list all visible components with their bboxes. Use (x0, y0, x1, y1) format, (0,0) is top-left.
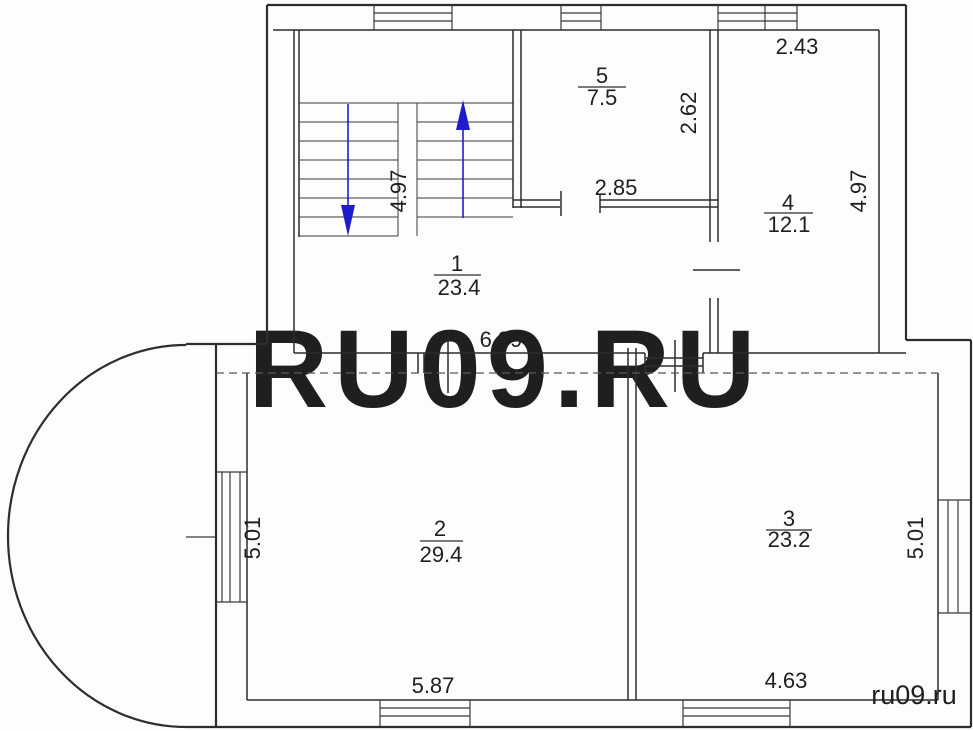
room-1-area: 23.4 (438, 275, 481, 300)
dim-room2-left-height: 5.01 (240, 517, 265, 560)
floor-plan-page: RU09.RU 1 23.4 2 29.4 (0, 0, 973, 731)
dim-top-right-width: 2.43 (776, 34, 819, 59)
room-4-area: 12.1 (768, 212, 811, 237)
window-top-middle (561, 5, 601, 30)
window-top-left (374, 5, 452, 30)
dim-room5-door-width: 2.85 (595, 175, 638, 200)
dim-room3-right-height: 5.01 (903, 517, 928, 560)
window-bottom-left (380, 700, 470, 727)
room-1-number: 1 (451, 251, 463, 276)
room-5-area: 7.5 (587, 85, 618, 110)
dim-room4-left-height: 2.62 (676, 92, 701, 135)
staircase (299, 103, 513, 236)
dim-hall-bottom-width: 6.39 (480, 327, 523, 352)
dim-room2-bottom-width: 5.87 (412, 673, 455, 698)
dim-room3-bottom-width: 4.63 (765, 668, 808, 693)
dim-room4-right-height: 4.97 (846, 170, 871, 213)
window-right-wall (938, 500, 971, 613)
stairs-down-arrow-icon (341, 205, 355, 236)
room-3-area: 23.2 (768, 527, 811, 552)
dim-stairwell-height: 4.97 (386, 170, 411, 213)
stair-treads (299, 103, 513, 236)
window-top-right (718, 5, 797, 30)
floor-plan-drawing: RU09.RU 1 23.4 2 29.4 (0, 0, 973, 731)
window-bottom-right (683, 700, 790, 727)
stairs-up-arrow-icon (456, 100, 470, 130)
room-2-number: 2 (434, 516, 446, 541)
room-2-area: 29.4 (420, 542, 463, 567)
bay-arc-wall (8, 345, 186, 727)
watermark-small: ru09.ru (871, 680, 957, 710)
